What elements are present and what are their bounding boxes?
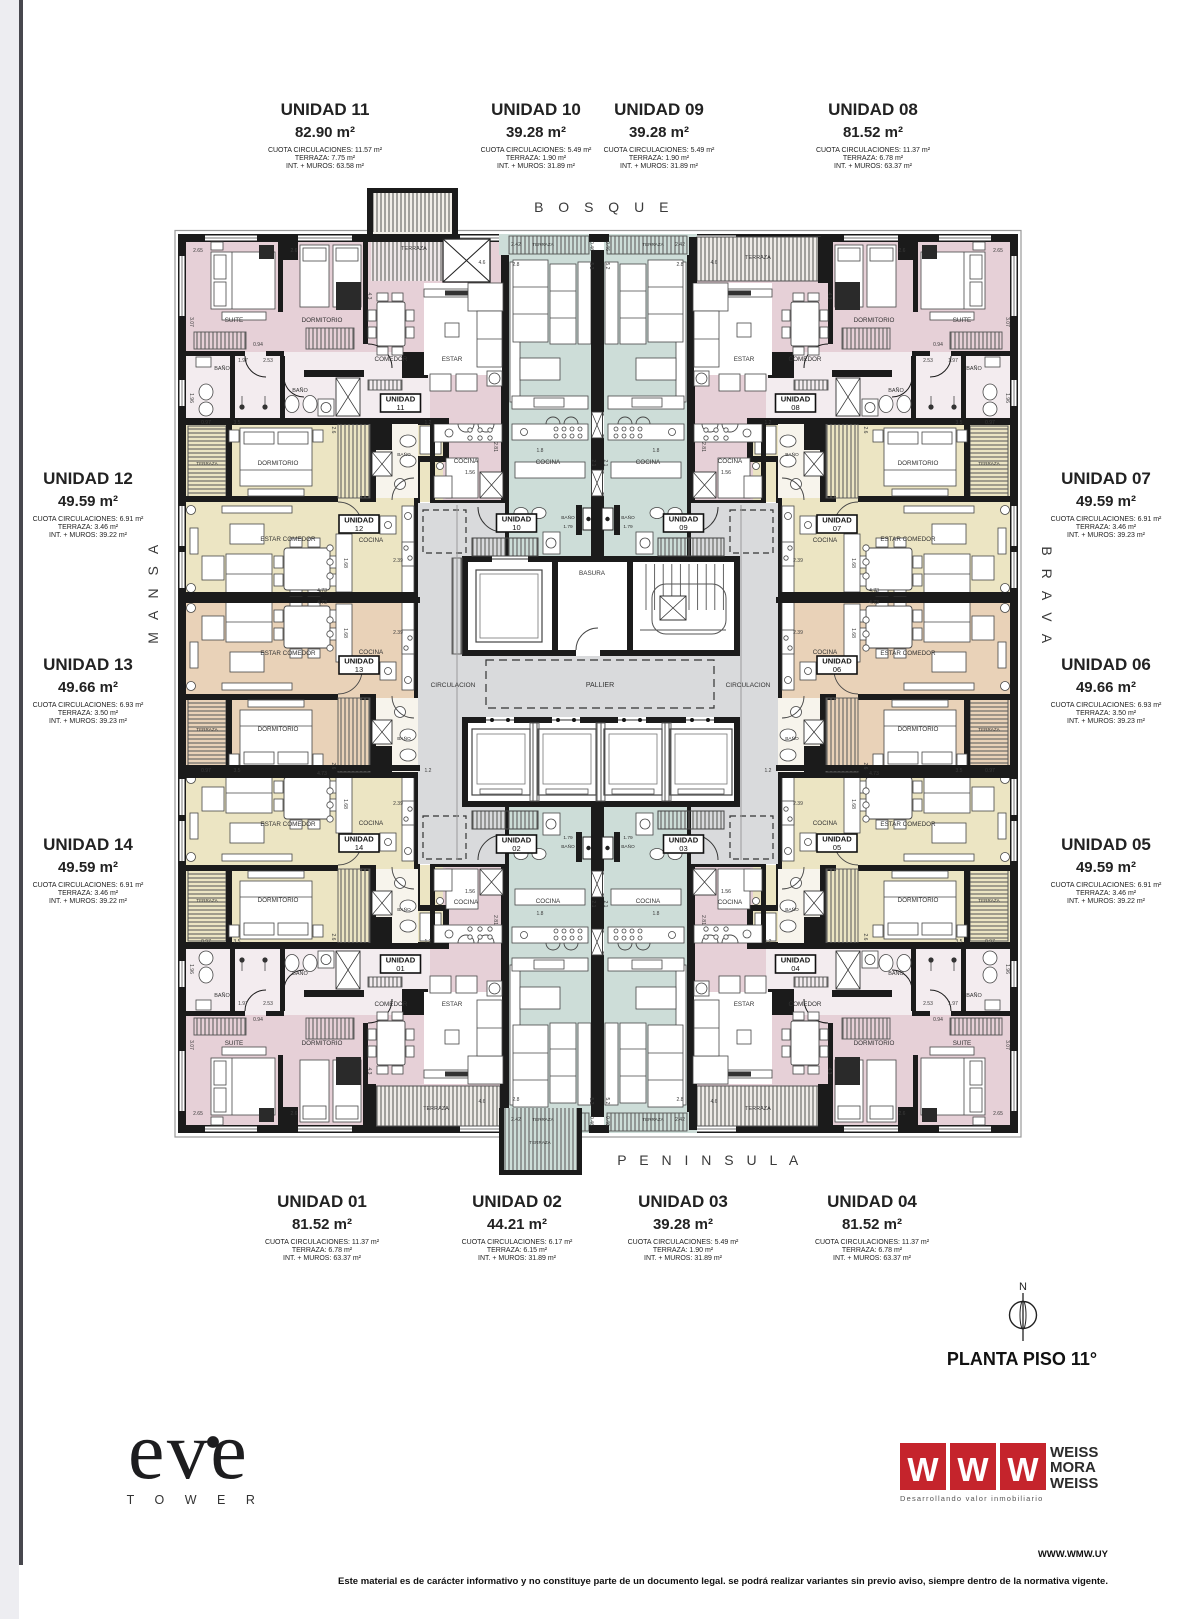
svg-text:1.68: 1.68 — [342, 799, 348, 809]
svg-text:3.5: 3.5 — [956, 420, 963, 426]
svg-text:4.73: 4.73 — [317, 600, 327, 606]
svg-text:TERRAZA: TERRAZA — [978, 898, 1000, 903]
svg-text:ESTAR COMEDOR: ESTAR COMEDOR — [260, 821, 316, 828]
svg-text:2.42: 2.42 — [511, 1117, 521, 1123]
svg-text:ESTAR COMEDOR: ESTAR COMEDOR — [880, 650, 936, 657]
svg-text:1.56: 1.56 — [721, 470, 731, 476]
svg-text:ESTAR COMEDOR: ESTAR COMEDOR — [260, 536, 316, 543]
svg-text:1.2: 1.2 — [765, 939, 772, 945]
svg-text:T O W E R: T O W E R — [127, 1493, 264, 1507]
svg-text:CUOTA CIRCULACIONES: 11.37 m²: CUOTA CIRCULACIONES: 11.37 m² — [816, 147, 931, 154]
svg-text:INT. + MUROS: 39.23 m²: INT. + MUROS: 39.23 m² — [49, 718, 128, 725]
svg-text:INT. + MUROS: 39.23 m²: INT. + MUROS: 39.23 m² — [1067, 718, 1146, 725]
svg-text:INT. + MUROS: 39.22 m²: INT. + MUROS: 39.22 m² — [49, 532, 128, 539]
svg-text:2.1: 2.1 — [590, 901, 596, 908]
svg-text:1.68: 1.68 — [342, 558, 348, 568]
svg-text:13: 13 — [355, 665, 363, 674]
svg-text:2.81: 2.81 — [492, 442, 498, 452]
svg-text:BAÑO: BAÑO — [214, 992, 230, 999]
svg-text:BAÑO: BAÑO — [561, 843, 575, 850]
svg-text:B R A V A: B R A V A — [1039, 546, 1055, 647]
svg-text:COMEDOR: COMEDOR — [375, 1001, 408, 1008]
svg-text:UNIDAD 14: UNIDAD 14 — [43, 835, 133, 854]
svg-text:3.5: 3.5 — [234, 420, 241, 426]
svg-text:0.97: 0.97 — [201, 420, 211, 426]
svg-text:COCINA: COCINA — [813, 537, 838, 544]
svg-text:1.68: 1.68 — [850, 558, 856, 568]
svg-text:BAÑO: BAÑO — [966, 365, 982, 372]
svg-text:2.53: 2.53 — [263, 358, 273, 364]
svg-text:2.8: 2.8 — [513, 1097, 520, 1103]
svg-text:14: 14 — [355, 843, 363, 852]
svg-text:COCINA: COCINA — [359, 649, 384, 656]
svg-text:02: 02 — [512, 844, 520, 853]
svg-text:07: 07 — [833, 524, 841, 533]
svg-text:COCINA: COCINA — [813, 820, 838, 827]
svg-text:TERRAZA: 7.75 m²: TERRAZA: 7.75 m² — [295, 155, 356, 162]
svg-text:2.39: 2.39 — [793, 630, 803, 636]
svg-text:INT. + MUROS: 39.23 m²: INT. + MUROS: 39.23 m² — [1067, 532, 1146, 539]
svg-text:eve: eve — [128, 1405, 249, 1496]
svg-text:INT. + MUROS: 31.89 m²: INT. + MUROS: 31.89 m² — [478, 1255, 557, 1262]
svg-text:09: 09 — [679, 523, 687, 532]
svg-text:COMEDOR: COMEDOR — [789, 356, 822, 363]
svg-text:2.8: 2.8 — [513, 262, 520, 268]
svg-text:4.3: 4.3 — [826, 1068, 832, 1075]
svg-text:2.81: 2.81 — [492, 915, 498, 925]
svg-text:1.2: 1.2 — [765, 768, 772, 774]
svg-text:TERRAZA: 3.50 m²: TERRAZA: 3.50 m² — [58, 710, 119, 717]
svg-text:2.42: 2.42 — [511, 242, 521, 248]
svg-text:4.73: 4.73 — [317, 771, 327, 777]
svg-text:82.90 m²: 82.90 m² — [295, 124, 355, 141]
svg-text:2.6: 2.6 — [330, 763, 336, 770]
svg-text:2.42: 2.42 — [675, 1117, 685, 1123]
svg-text:49.66 m²: 49.66 m² — [1076, 679, 1136, 696]
svg-text:1.79: 1.79 — [623, 835, 633, 841]
svg-text:1.96: 1.96 — [1004, 964, 1010, 974]
svg-text:4.3: 4.3 — [366, 1068, 372, 1075]
svg-text:4.6: 4.6 — [479, 260, 486, 266]
svg-text:0.46: 0.46 — [588, 1116, 594, 1126]
svg-text:0.97: 0.97 — [985, 939, 995, 945]
svg-text:TERRAZA: TERRAZA — [196, 727, 218, 732]
svg-text:2.6: 2.6 — [330, 934, 336, 941]
svg-text:TERRAZA: TERRAZA — [745, 1106, 771, 1112]
svg-text:BAÑO: BAÑO — [785, 451, 799, 458]
svg-text:DORMITORIO: DORMITORIO — [302, 1040, 343, 1047]
svg-text:BAÑO: BAÑO — [621, 514, 635, 521]
svg-text:WWW.WMW.UY: WWW.WMW.UY — [1038, 1549, 1109, 1560]
svg-text:4.6: 4.6 — [711, 1099, 718, 1105]
svg-text:TERRAZA: TERRAZA — [532, 242, 554, 247]
svg-text:3.07: 3.07 — [188, 317, 194, 327]
svg-text:0.46: 0.46 — [588, 241, 594, 251]
svg-text:COMEDOR: COMEDOR — [375, 356, 408, 363]
svg-text:SUITE: SUITE — [953, 1040, 972, 1047]
svg-text:2.6: 2.6 — [899, 248, 906, 254]
svg-text:3.5: 3.5 — [956, 768, 963, 774]
svg-text:INT. + MUROS: 39.22 m²: INT. + MUROS: 39.22 m² — [1067, 898, 1146, 905]
svg-text:4.3: 4.3 — [366, 293, 372, 300]
svg-text:CUOTA CIRCULACIONES: 11.37 m²: CUOTA CIRCULACIONES: 11.37 m² — [815, 1239, 930, 1246]
svg-text:1.8: 1.8 — [537, 911, 544, 917]
svg-text:DORMITORIO: DORMITORIO — [854, 1040, 895, 1047]
svg-text:COMEDOR: COMEDOR — [789, 1001, 822, 1008]
svg-text:39.28 m²: 39.28 m² — [653, 1216, 713, 1233]
svg-text:INT. + MUROS: 31.89 m²: INT. + MUROS: 31.89 m² — [644, 1255, 723, 1262]
svg-text:COCINA: COCINA — [718, 899, 743, 906]
svg-text:TERRAZA: TERRAZA — [978, 461, 1000, 466]
svg-text:BAÑO: BAÑO — [214, 365, 230, 372]
svg-text:1.68: 1.68 — [850, 628, 856, 638]
svg-text:0.46: 0.46 — [604, 1116, 610, 1126]
svg-text:BAÑO: BAÑO — [397, 735, 411, 742]
svg-text:TERRAZA: 3.46 m²: TERRAZA: 3.46 m² — [58, 890, 119, 897]
svg-text:2.6: 2.6 — [862, 934, 868, 941]
svg-text:81.52 m²: 81.52 m² — [842, 1216, 902, 1233]
svg-text:3.5: 3.5 — [234, 768, 241, 774]
svg-text:3.07: 3.07 — [1004, 317, 1010, 327]
svg-text:INT. + MUROS: 39.22 m²: INT. + MUROS: 39.22 m² — [49, 898, 128, 905]
svg-text:3.5: 3.5 — [234, 939, 241, 945]
svg-text:2.1: 2.1 — [590, 460, 596, 467]
svg-text:TERRAZA: 3.50 m²: TERRAZA: 3.50 m² — [1076, 710, 1137, 717]
svg-text:0.94: 0.94 — [933, 1017, 943, 1023]
svg-text:1.97: 1.97 — [238, 1001, 248, 1007]
svg-text:1.79: 1.79 — [563, 524, 573, 530]
svg-text:0.94: 0.94 — [253, 1017, 263, 1023]
svg-text:CUOTA CIRCULACIONES: 6.17 m²: CUOTA CIRCULACIONES: 6.17 m² — [462, 1239, 573, 1246]
svg-text:TERRAZA: TERRAZA — [529, 1140, 551, 1145]
svg-text:2.42: 2.42 — [675, 242, 685, 248]
svg-text:3.07: 3.07 — [1004, 1040, 1010, 1050]
svg-text:1.68: 1.68 — [342, 628, 348, 638]
svg-text:TERRAZA: TERRAZA — [423, 1106, 449, 1112]
svg-text:ESTAR: ESTAR — [442, 1001, 463, 1008]
svg-text:1.2: 1.2 — [765, 420, 772, 426]
svg-text:COCINA: COCINA — [718, 458, 743, 465]
svg-text:CUOTA CIRCULACIONES: 6.93 m²: CUOTA CIRCULACIONES: 6.93 m² — [33, 702, 144, 709]
svg-text:0.94: 0.94 — [253, 342, 263, 348]
svg-text:2.6: 2.6 — [862, 763, 868, 770]
svg-text:UNIDAD 12: UNIDAD 12 — [43, 469, 133, 488]
svg-text:W: W — [1007, 1451, 1039, 1488]
svg-text:1.96: 1.96 — [1004, 393, 1010, 403]
svg-text:81.52 m²: 81.52 m² — [843, 124, 903, 141]
svg-text:1.56: 1.56 — [721, 889, 731, 895]
svg-text:3.5: 3.5 — [956, 939, 963, 945]
svg-text:COCINA: COCINA — [536, 898, 561, 905]
svg-text:01: 01 — [396, 964, 404, 973]
svg-text:COCINA: COCINA — [359, 820, 384, 827]
svg-text:2.6: 2.6 — [330, 427, 336, 434]
svg-text:4.3: 4.3 — [826, 293, 832, 300]
svg-text:5.2: 5.2 — [604, 1098, 610, 1105]
svg-text:1.97: 1.97 — [948, 358, 958, 364]
svg-text:DORMITORIO: DORMITORIO — [898, 460, 939, 467]
svg-text:DORMITORIO: DORMITORIO — [258, 460, 299, 467]
svg-text:1.79: 1.79 — [563, 835, 573, 841]
svg-text:1.97: 1.97 — [238, 358, 248, 364]
svg-text:1.79: 1.79 — [623, 524, 633, 530]
svg-text:2.6: 2.6 — [291, 248, 298, 254]
svg-text:BAÑO: BAÑO — [292, 970, 308, 977]
svg-text:COCINA: COCINA — [636, 459, 661, 466]
svg-text:COCINA: COCINA — [454, 458, 479, 465]
svg-text:CUOTA CIRCULACIONES: 6.91 m²: CUOTA CIRCULACIONES: 6.91 m² — [1051, 882, 1162, 889]
svg-text:DORMITORIO: DORMITORIO — [258, 726, 299, 733]
svg-text:2.39: 2.39 — [393, 801, 403, 807]
svg-text:1.8: 1.8 — [537, 448, 544, 454]
svg-text:W: W — [907, 1451, 939, 1488]
svg-text:4.6: 4.6 — [479, 1099, 486, 1105]
svg-text:INT. + MUROS: 63.58 m²: INT. + MUROS: 63.58 m² — [286, 163, 365, 170]
svg-text:CUOTA CIRCULACIONES: 6.93 m²: CUOTA CIRCULACIONES: 6.93 m² — [1051, 702, 1162, 709]
svg-text:DORMITORIO: DORMITORIO — [898, 726, 939, 733]
svg-text:2.1: 2.1 — [602, 460, 608, 467]
svg-text:TERRAZA: TERRAZA — [642, 242, 664, 247]
svg-text:MORA: MORA — [1050, 1459, 1096, 1476]
svg-text:08: 08 — [791, 403, 799, 412]
svg-text:CUOTA CIRCULACIONES: 11.57 m²: CUOTA CIRCULACIONES: 11.57 m² — [268, 147, 383, 154]
svg-text:2.65: 2.65 — [993, 1111, 1003, 1117]
svg-text:TERRAZA: 3.46 m²: TERRAZA: 3.46 m² — [1076, 890, 1137, 897]
svg-text:06: 06 — [833, 665, 841, 674]
svg-text:2.8: 2.8 — [677, 1097, 684, 1103]
svg-text:BAÑO: BAÑO — [561, 514, 575, 521]
svg-text:TERRAZA: 6.15 m²: TERRAZA: 6.15 m² — [487, 1247, 548, 1254]
svg-text:INT. + MUROS: 63.37 m²: INT. + MUROS: 63.37 m² — [833, 1255, 912, 1262]
svg-text:0.94: 0.94 — [933, 342, 943, 348]
svg-text:1.8: 1.8 — [653, 448, 660, 454]
svg-text:04: 04 — [791, 964, 799, 973]
svg-text:44.21 m²: 44.21 m² — [487, 1216, 547, 1233]
svg-text:UNIDAD 03: UNIDAD 03 — [638, 1192, 728, 1211]
svg-text:PLANTA PISO 11°: PLANTA PISO 11° — [947, 1349, 1097, 1369]
svg-text:BAÑO: BAÑO — [888, 387, 904, 394]
svg-text:ESTAR COMEDOR: ESTAR COMEDOR — [260, 650, 316, 657]
svg-text:1.96: 1.96 — [188, 393, 194, 403]
svg-text:TERRAZA: TERRAZA — [196, 461, 218, 466]
svg-text:1.68: 1.68 — [850, 799, 856, 809]
svg-text:ESTAR COMEDOR: ESTAR COMEDOR — [880, 821, 936, 828]
svg-text:TERRAZA: 3.46 m²: TERRAZA: 3.46 m² — [1076, 524, 1137, 531]
svg-text:Desarrollando valor inmobiliar: Desarrollando valor inmobiliario — [900, 1494, 1043, 1503]
svg-text:1.96: 1.96 — [188, 964, 194, 974]
svg-text:11: 11 — [397, 403, 405, 412]
svg-text:49.66 m²: 49.66 m² — [58, 679, 118, 696]
svg-text:2.6: 2.6 — [291, 1111, 298, 1117]
svg-text:WEISS: WEISS — [1050, 1475, 1098, 1492]
svg-text:2.53: 2.53 — [923, 358, 933, 364]
svg-text:2.53: 2.53 — [263, 1001, 273, 1007]
svg-text:BAÑO: BAÑO — [621, 843, 635, 850]
svg-text:2.81: 2.81 — [700, 915, 706, 925]
svg-text:TERRAZA: TERRAZA — [745, 255, 771, 261]
svg-text:TERRAZA: 6.78 m²: TERRAZA: 6.78 m² — [842, 1247, 903, 1254]
svg-text:TERRAZA: 1.90 m²: TERRAZA: 1.90 m² — [629, 155, 690, 162]
svg-text:COCINA: COCINA — [536, 459, 561, 466]
svg-text:TERRAZA: TERRAZA — [642, 1117, 664, 1122]
svg-text:3.07: 3.07 — [188, 1040, 194, 1050]
svg-text:UNIDAD 05: UNIDAD 05 — [1061, 835, 1151, 854]
svg-text:4.73: 4.73 — [869, 771, 879, 777]
svg-text:1.2: 1.2 — [425, 939, 432, 945]
svg-text:TERRAZA: 6.78 m²: TERRAZA: 6.78 m² — [292, 1247, 353, 1254]
svg-text:49.59 m²: 49.59 m² — [1076, 493, 1136, 510]
svg-text:2.39: 2.39 — [793, 558, 803, 564]
svg-text:UNIDAD 06: UNIDAD 06 — [1061, 655, 1151, 674]
svg-text:BAÑO: BAÑO — [888, 970, 904, 977]
svg-text:49.59 m²: 49.59 m² — [58, 493, 118, 510]
svg-text:COCINA: COCINA — [359, 537, 384, 544]
svg-text:0.97: 0.97 — [985, 768, 995, 774]
svg-text:TERRAZA: TERRAZA — [532, 1117, 554, 1122]
svg-text:INT. + MUROS: 63.37 m²: INT. + MUROS: 63.37 m² — [283, 1255, 362, 1262]
svg-text:1.56: 1.56 — [465, 470, 475, 476]
svg-text:N: N — [1019, 1281, 1027, 1293]
svg-text:UNIDAD 02: UNIDAD 02 — [472, 1192, 562, 1211]
svg-text:0.97: 0.97 — [985, 420, 995, 426]
svg-text:10: 10 — [512, 523, 520, 532]
svg-text:CUOTA CIRCULACIONES: 6.91 m²: CUOTA CIRCULACIONES: 6.91 m² — [33, 516, 144, 523]
svg-text:UNIDAD 13: UNIDAD 13 — [43, 655, 133, 674]
svg-text:DORMITORIO: DORMITORIO — [898, 897, 939, 904]
svg-text:SUITE: SUITE — [225, 1040, 244, 1047]
svg-text:PALLIER: PALLIER — [586, 682, 614, 689]
svg-text:CUOTA CIRCULACIONES: 5.49 m²: CUOTA CIRCULACIONES: 5.49 m² — [604, 147, 715, 154]
svg-text:INT. + MUROS: 31.89 m²: INT. + MUROS: 31.89 m² — [620, 163, 699, 170]
svg-text:BAÑO: BAÑO — [292, 387, 308, 394]
svg-text:49.59 m²: 49.59 m² — [58, 859, 118, 876]
svg-text:2.39: 2.39 — [393, 630, 403, 636]
svg-text:1.2: 1.2 — [425, 420, 432, 426]
svg-text:05: 05 — [833, 843, 841, 852]
svg-text:COCINA: COCINA — [636, 898, 661, 905]
svg-text:CIRCULACION: CIRCULACION — [726, 682, 771, 689]
svg-text:INT. + MUROS: 31.89 m²: INT. + MUROS: 31.89 m² — [497, 163, 576, 170]
svg-text:DORMITORIO: DORMITORIO — [302, 317, 343, 324]
svg-text:W: W — [957, 1451, 989, 1488]
svg-text:TERRAZA: 1.90 m²: TERRAZA: 1.90 m² — [506, 155, 567, 162]
svg-text:39.28 m²: 39.28 m² — [506, 124, 566, 141]
svg-text:UNIDAD 07: UNIDAD 07 — [1061, 469, 1151, 488]
svg-text:1.8: 1.8 — [653, 911, 660, 917]
svg-text:2.6: 2.6 — [899, 1111, 906, 1117]
svg-text:INT. + MUROS: 63.37 m²: INT. + MUROS: 63.37 m² — [834, 163, 913, 170]
svg-text:SUITE: SUITE — [953, 317, 972, 324]
svg-text:M A N S A: M A N S A — [145, 540, 161, 644]
svg-text:UNIDAD 01: UNIDAD 01 — [277, 1192, 367, 1211]
svg-text:COCINA: COCINA — [454, 899, 479, 906]
svg-text:TERRAZA: 6.78 m²: TERRAZA: 6.78 m² — [843, 155, 904, 162]
svg-text:BASURA: BASURA — [579, 570, 606, 577]
svg-text:CUOTA CIRCULACIONES: 11.37 m²: CUOTA CIRCULACIONES: 11.37 m² — [265, 1239, 380, 1246]
svg-text:03: 03 — [679, 844, 687, 853]
svg-text:TERRAZA: 1.90 m²: TERRAZA: 1.90 m² — [653, 1247, 714, 1254]
svg-text:2.6: 2.6 — [862, 427, 868, 434]
svg-text:BAÑO: BAÑO — [785, 735, 799, 742]
svg-text:ESTAR COMEDOR: ESTAR COMEDOR — [880, 536, 936, 543]
svg-text:COCINA: COCINA — [813, 649, 838, 656]
svg-text:BAÑO: BAÑO — [785, 906, 799, 913]
svg-text:2.65: 2.65 — [193, 248, 203, 254]
svg-text:ESTAR: ESTAR — [442, 356, 463, 363]
svg-text:CIRCULACION: CIRCULACION — [431, 682, 476, 689]
svg-text:TERRAZA: TERRAZA — [401, 246, 427, 252]
svg-text:DORMITORIO: DORMITORIO — [854, 317, 895, 324]
svg-text:TERRAZA: TERRAZA — [978, 727, 1000, 732]
svg-text:BAÑO: BAÑO — [397, 906, 411, 913]
svg-text:4.73: 4.73 — [869, 588, 879, 594]
svg-text:2.53: 2.53 — [923, 1001, 933, 1007]
svg-text:1.97: 1.97 — [948, 1001, 958, 1007]
svg-text:CUOTA CIRCULACIONES: 5.49 m²: CUOTA CIRCULACIONES: 5.49 m² — [628, 1239, 739, 1246]
svg-text:SUITE: SUITE — [225, 317, 244, 324]
svg-text:1.56: 1.56 — [465, 889, 475, 895]
svg-text:BAÑO: BAÑO — [966, 992, 982, 999]
svg-text:TERRAZA: TERRAZA — [196, 898, 218, 903]
svg-text:TERRAZA: 3.46 m²: TERRAZA: 3.46 m² — [58, 524, 119, 531]
svg-text:1.2: 1.2 — [425, 768, 432, 774]
svg-text:2.65: 2.65 — [993, 248, 1003, 254]
svg-text:4.73: 4.73 — [317, 588, 327, 594]
svg-text:0.46: 0.46 — [604, 241, 610, 251]
svg-text:2.1: 2.1 — [602, 901, 608, 908]
svg-text:UNIDAD 04: UNIDAD 04 — [827, 1192, 917, 1211]
svg-text:4.6: 4.6 — [711, 260, 718, 266]
svg-text:12: 12 — [355, 524, 363, 533]
svg-text:DORMITORIO: DORMITORIO — [258, 897, 299, 904]
svg-text:5.2: 5.2 — [588, 1098, 594, 1105]
svg-text:2.39: 2.39 — [393, 558, 403, 564]
svg-text:5.2: 5.2 — [588, 263, 594, 270]
svg-text:Este material es de carácter i: Este material es de carácter informativo… — [338, 1576, 1108, 1586]
svg-text:BAÑO: BAÑO — [397, 451, 411, 458]
svg-text:CUOTA CIRCULACIONES: 6.91 m²: CUOTA CIRCULACIONES: 6.91 m² — [33, 882, 144, 889]
svg-text:2.8: 2.8 — [677, 262, 684, 268]
svg-text:UNIDAD 08: UNIDAD 08 — [828, 100, 918, 119]
svg-text:81.52 m²: 81.52 m² — [292, 1216, 352, 1233]
svg-text:4.73: 4.73 — [869, 600, 879, 606]
svg-text:49.59 m²: 49.59 m² — [1076, 859, 1136, 876]
svg-text:2.65: 2.65 — [193, 1111, 203, 1117]
svg-text:P E N I N S U L A: P E N I N S U L A — [617, 1152, 802, 1168]
svg-text:0.97: 0.97 — [201, 939, 211, 945]
svg-text:UNIDAD 11: UNIDAD 11 — [281, 100, 370, 119]
svg-text:2.81: 2.81 — [700, 442, 706, 452]
svg-text:B O S Q U E: B O S Q U E — [534, 199, 674, 215]
svg-text:UNIDAD 09: UNIDAD 09 — [614, 100, 704, 119]
svg-text:39.28 m²: 39.28 m² — [629, 124, 689, 141]
svg-text:CUOTA CIRCULACIONES: 6.91 m²: CUOTA CIRCULACIONES: 6.91 m² — [1051, 516, 1162, 523]
svg-text:0.97: 0.97 — [201, 768, 211, 774]
svg-text:CUOTA CIRCULACIONES: 5.49 m²: CUOTA CIRCULACIONES: 5.49 m² — [481, 147, 592, 154]
svg-text:ESTAR: ESTAR — [734, 1001, 755, 1008]
svg-text:2.39: 2.39 — [793, 801, 803, 807]
svg-text:5.2: 5.2 — [604, 263, 610, 270]
svg-text:UNIDAD 10: UNIDAD 10 — [491, 100, 581, 119]
svg-text:ESTAR: ESTAR — [734, 356, 755, 363]
